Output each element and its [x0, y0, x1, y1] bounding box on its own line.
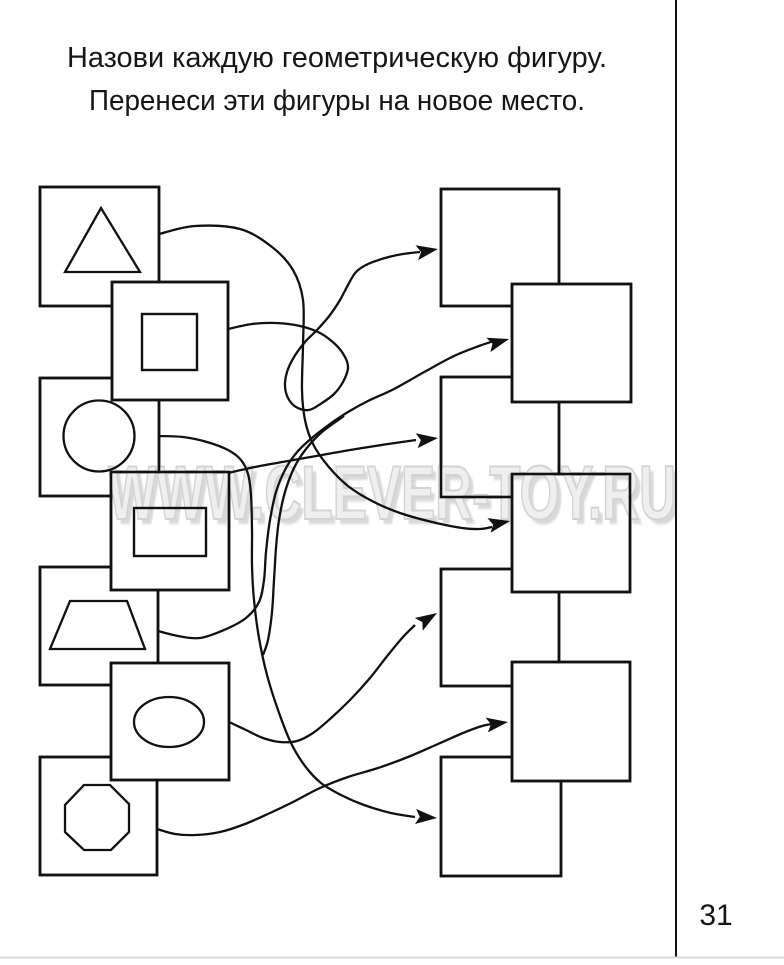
- svg-text:31: 31: [699, 899, 732, 932]
- svg-text:WWW.CLEVER-TOY.RU: WWW.CLEVER-TOY.RU: [108, 450, 676, 536]
- svg-text:Перенеси эти фигуры на новое м: Перенеси эти фигуры на новое место.: [89, 85, 585, 117]
- svg-text:Назови каждую геометрическую ф: Назови каждую геометрическую фигуру.: [67, 42, 607, 74]
